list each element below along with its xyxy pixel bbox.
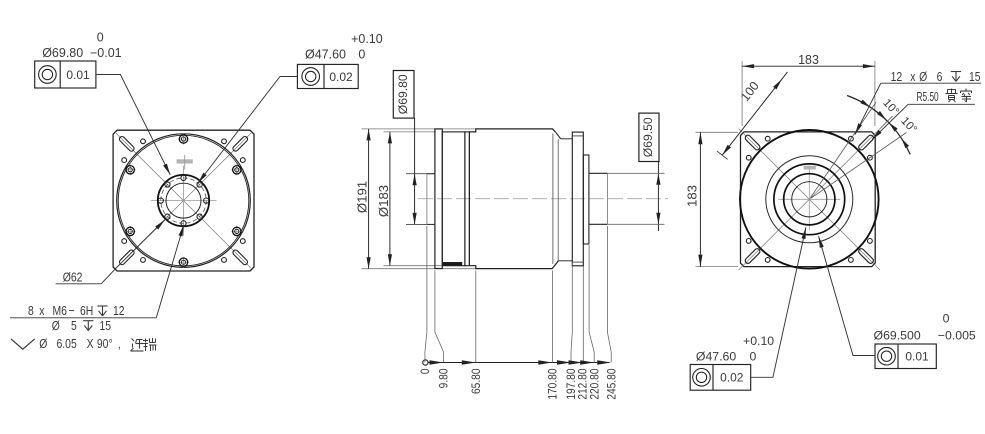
svg-text:245.80: 245.80	[606, 369, 619, 400]
svg-text:,: ,	[118, 337, 121, 351]
svg-text:x: x	[39, 304, 44, 318]
svg-text:Ø: Ø	[919, 70, 927, 84]
svg-text:15: 15	[100, 319, 112, 333]
svg-text:0.02: 0.02	[720, 371, 744, 385]
svg-text:0.01: 0.01	[905, 350, 929, 364]
svg-text:65.80: 65.80	[470, 369, 483, 395]
svg-text:−0.01: −0.01	[90, 46, 122, 60]
svg-text:90°: 90°	[97, 337, 113, 351]
svg-text:x: x	[910, 70, 915, 84]
svg-text:Ø: Ø	[39, 337, 47, 351]
svg-text:183: 183	[798, 53, 819, 67]
svg-text:9.80: 9.80	[438, 369, 451, 389]
svg-text:Ø191: Ø191	[355, 181, 370, 213]
svg-text:+0.10: +0.10	[743, 334, 774, 348]
svg-text:Ø69.80: Ø69.80	[396, 74, 410, 114]
svg-text:0: 0	[943, 312, 950, 326]
svg-text:R5.50: R5.50	[917, 90, 939, 104]
svg-text:Ø47.60: Ø47.60	[305, 47, 346, 61]
svg-text:0: 0	[749, 350, 756, 364]
svg-text:0.01: 0.01	[66, 68, 90, 82]
svg-text:0: 0	[419, 369, 432, 375]
svg-text:6: 6	[937, 70, 943, 84]
svg-text:15: 15	[969, 70, 981, 84]
svg-text:0.02: 0.02	[329, 70, 353, 84]
svg-text:0: 0	[358, 47, 365, 61]
svg-text:12: 12	[891, 70, 903, 84]
svg-text:5: 5	[71, 319, 77, 333]
svg-text:Ø: Ø	[52, 319, 60, 333]
svg-text:170.80: 170.80	[547, 369, 560, 400]
svg-text:Ø69.500: Ø69.500	[874, 329, 921, 343]
svg-text:Ø47.60: Ø47.60	[696, 349, 736, 363]
svg-text:Ø62: Ø62	[63, 270, 83, 284]
svg-text:8: 8	[28, 304, 34, 318]
svg-text:X: X	[87, 337, 94, 351]
svg-text:Ø69.50: Ø69.50	[641, 117, 655, 157]
svg-text:−: −	[69, 304, 75, 318]
svg-text:Ø183: Ø183	[376, 185, 391, 217]
svg-text:Ø69.80: Ø69.80	[42, 46, 83, 60]
svg-text:6.05: 6.05	[57, 337, 78, 351]
svg-text:+0.10: +0.10	[351, 32, 383, 46]
svg-text:6H: 6H	[80, 304, 93, 318]
svg-text:12: 12	[113, 304, 125, 318]
svg-text:0: 0	[97, 31, 104, 45]
svg-text:183: 183	[685, 185, 700, 207]
svg-text:220.80: 220.80	[589, 369, 602, 400]
svg-text:M6: M6	[53, 304, 68, 318]
svg-text:−0.005: −0.005	[938, 329, 976, 343]
